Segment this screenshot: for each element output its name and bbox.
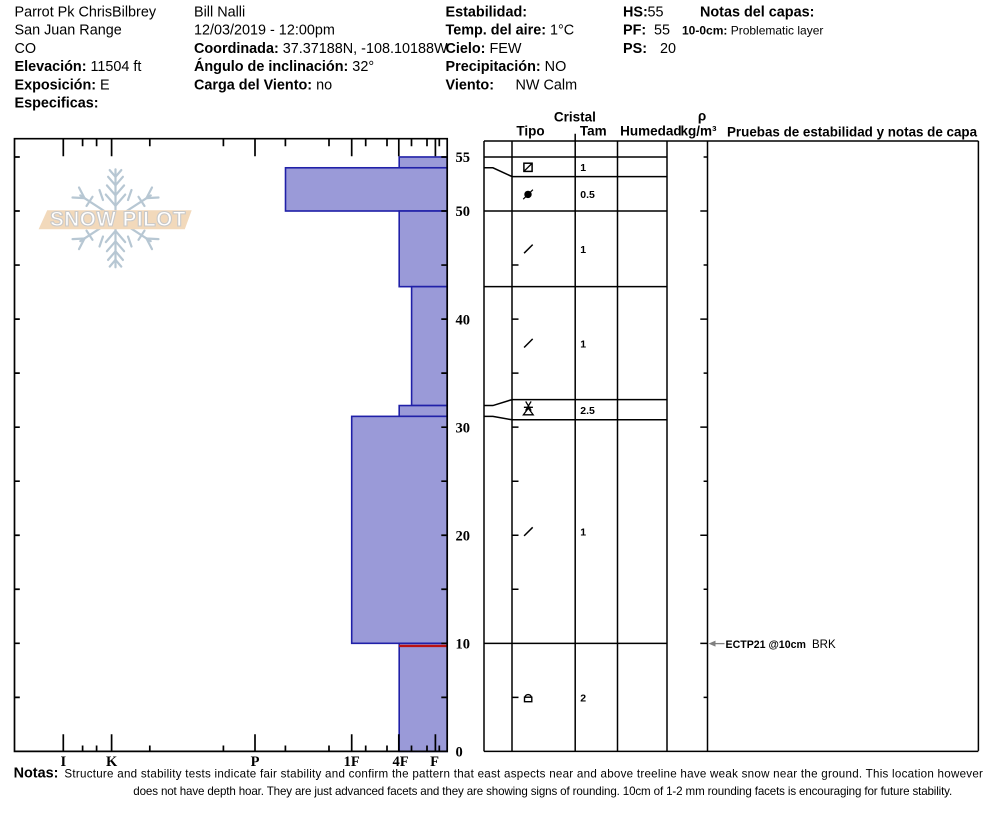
svg-text:1: 1 [580, 527, 586, 539]
svg-text:1: 1 [580, 244, 586, 256]
svg-text:Coordinada: 37.37188N, -108.10: Coordinada: 37.37188N, -108.10188W [194, 41, 448, 57]
svg-text:50: 50 [456, 204, 471, 220]
svg-text:does not have depth hoar. They: does not have depth hoar. They are just … [133, 785, 952, 798]
svg-text:SNOW PILOT: SNOW PILOT [50, 208, 186, 231]
svg-text:Tipo: Tipo [516, 123, 544, 138]
svg-text:2: 2 [580, 693, 586, 705]
svg-text:Parrot Pk ChrisBilbrey: Parrot Pk ChrisBilbrey [15, 5, 157, 21]
svg-text:Cielo: FEW: Cielo: FEW [446, 41, 522, 57]
svg-text:ECTP21 @10cm: ECTP21 @10cm [726, 639, 806, 651]
svg-text:Especificas:: Especificas: [15, 96, 99, 112]
svg-text:Structure and stability tests: Structure and stability tests indicate f… [64, 768, 983, 781]
svg-text:Carga del Viento: no: Carga del Viento: no [194, 77, 332, 93]
svg-text:10: 10 [456, 637, 471, 653]
svg-text:Temp. del aire: 1°C: Temp. del aire: 1°C [446, 23, 575, 39]
svg-text:Notas:: Notas: [14, 766, 59, 782]
svg-text:Bill Nalli: Bill Nalli [194, 5, 245, 21]
svg-text:1: 1 [580, 338, 586, 350]
svg-text:40: 40 [456, 312, 471, 328]
svg-text:PS:20: PS:20 [623, 41, 676, 57]
svg-text:Viento: NW Calm: Viento: NW Calm [446, 77, 578, 93]
svg-text:20: 20 [456, 528, 471, 544]
svg-text:Elevación: 11504 ft: Elevación: 11504 ft [15, 59, 142, 75]
svg-text:ρ: ρ [698, 108, 706, 123]
svg-text:Estabilidad:: Estabilidad: [446, 5, 528, 21]
svg-text:0: 0 [456, 745, 463, 761]
svg-text:Notas del capas:: Notas del capas: [700, 5, 814, 21]
svg-text:10-0cm: Problematic layer: 10-0cm: Problematic layer [682, 24, 823, 38]
svg-text:CO: CO [15, 41, 37, 57]
svg-text:Tam: Tam [580, 123, 607, 138]
svg-text:kg/m³: kg/m³ [680, 123, 717, 138]
svg-text:0.5: 0.5 [580, 189, 595, 201]
svg-text:Cristal: Cristal [554, 110, 596, 125]
svg-text:2.5: 2.5 [580, 405, 595, 417]
svg-text:30: 30 [456, 420, 471, 436]
svg-text:Precipitación: NO: Precipitación: NO [446, 59, 567, 75]
svg-text:PF:55: PF:55 [623, 23, 670, 39]
svg-text:1: 1 [580, 162, 586, 174]
svg-text:Pruebas de estabilidad y notas: Pruebas de estabilidad y notas de capa [727, 125, 978, 140]
svg-text:Ángulo de inclinación: 32°: Ángulo de inclinación: 32° [194, 58, 374, 75]
svg-text:Humedad: Humedad [620, 123, 682, 138]
svg-text:12/03/2019 - 12:00pm: 12/03/2019 - 12:00pm [194, 23, 335, 39]
svg-text:BRK: BRK [812, 639, 836, 651]
svg-text:Exposición: E: Exposición: E [15, 77, 110, 93]
svg-text:San Juan Range: San Juan Range [15, 23, 122, 39]
svg-text:HS:55: HS:55 [623, 5, 664, 21]
svg-text:55: 55 [456, 150, 471, 166]
